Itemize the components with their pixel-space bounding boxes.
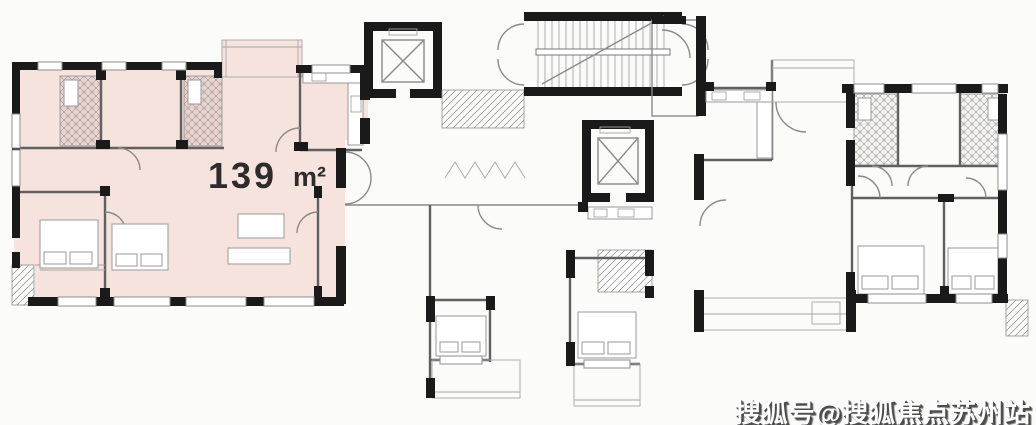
- balcony-middle-2: [574, 364, 640, 406]
- elevator-shaft-1: [364, 22, 442, 98]
- area-unit: m²: [293, 162, 326, 192]
- bathroom-hatch-2: [184, 76, 222, 146]
- bathroom-hatch-4: [960, 94, 1004, 166]
- bed-icon: [858, 246, 924, 294]
- floorplan-drawing: 139 m²: [0, 0, 1036, 425]
- unit-139: 139 m²: [12, 40, 371, 306]
- bed-icon: [578, 312, 636, 358]
- staircase: [498, 12, 708, 96]
- watermark: 搜狐号@搜狐焦点苏州站: [735, 400, 1031, 425]
- bed-icon: [948, 248, 998, 294]
- bed-icon: [112, 224, 168, 270]
- corridor-hatch: [345, 90, 582, 229]
- unit-middle: [426, 202, 654, 406]
- ac-platform-right: [1006, 300, 1028, 336]
- entry-hall: [652, 16, 706, 116]
- area-label: 139 m²: [208, 155, 326, 196]
- balcony-right: [702, 298, 848, 330]
- bed-icon: [40, 220, 98, 268]
- area-value: 139: [208, 155, 277, 196]
- bed-icon: [436, 316, 486, 356]
- bathroom-hatch-3: [854, 94, 898, 166]
- balcony-middle-1: [432, 360, 520, 398]
- elevator-shaft-2: [582, 120, 654, 202]
- interior-walls-middle: [430, 205, 652, 398]
- bathroom-hatch-1: [60, 76, 101, 146]
- kitchen-middle: [588, 207, 652, 292]
- entry-porch: [772, 60, 854, 132]
- floorplan-canvas: 139 m²: [0, 0, 1036, 425]
- kitchen-right: [698, 60, 772, 160]
- unit-right: [652, 16, 1028, 336]
